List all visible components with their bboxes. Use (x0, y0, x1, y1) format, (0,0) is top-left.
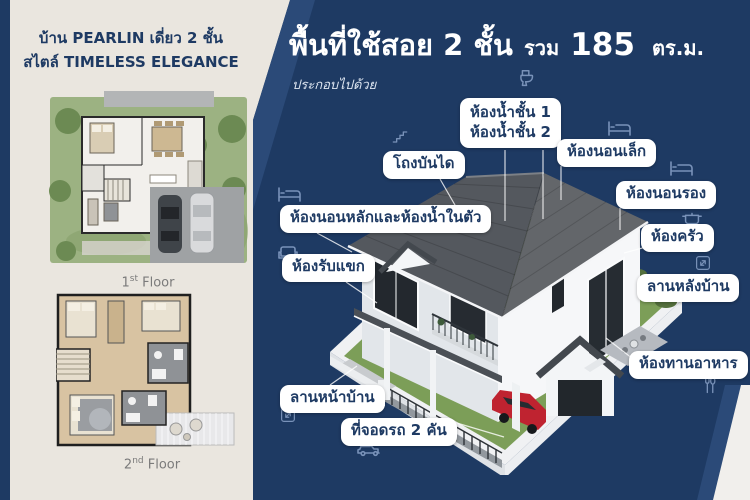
floor-1-suffix: st (130, 274, 138, 284)
project-title-line2: สไตล์ TIMELESS ELEGANCE (12, 50, 250, 74)
project-title: บ้าน PEARLIN เดี่ยว 2 ชั้น สไตล์ TIMELES… (12, 26, 250, 74)
floor-plan-2nd (56, 291, 251, 449)
area-title-number: 185 (570, 27, 635, 63)
infographic-root: บ้าน PEARLIN เดี่ยว 2 ชั้น สไตล์ TIMELES… (0, 0, 750, 500)
floor-2-suffix: nd (132, 456, 143, 466)
area-title-unit: ตร.ม. (652, 36, 704, 60)
floor-2-caption: 2nd Floor (52, 456, 252, 472)
area-title-main: พื้นที่ใช้สอย 2 ชั้น (289, 28, 513, 62)
right-panel: พื้นที่ใช้สอย 2 ชั้น รวม 185 ตร.ม. ประกอ… (253, 0, 750, 500)
floor-1-num: 1 (122, 275, 130, 290)
floor-1-word: Floor (138, 275, 174, 290)
floor-2-num: 2 (124, 457, 132, 472)
project-title-line1: บ้าน PEARLIN เดี่ยว 2 ชั้น (12, 26, 250, 50)
area-title-total-word: รวม (524, 36, 559, 60)
area-subtitle: ประกอบไปด้วย (292, 74, 376, 95)
left-accent-stripe (0, 0, 10, 500)
floor-1-caption: 1st Floor (48, 274, 248, 290)
area-title: พื้นที่ใช้สอย 2 ชั้น รวม 185 ตร.ม. (289, 22, 710, 68)
floor-plan-1st (46, 91, 251, 269)
floor-2-word: Floor (144, 457, 180, 472)
left-panel: บ้าน PEARLIN เดี่ยว 2 ชั้น สไตล์ TIMELES… (0, 0, 253, 500)
